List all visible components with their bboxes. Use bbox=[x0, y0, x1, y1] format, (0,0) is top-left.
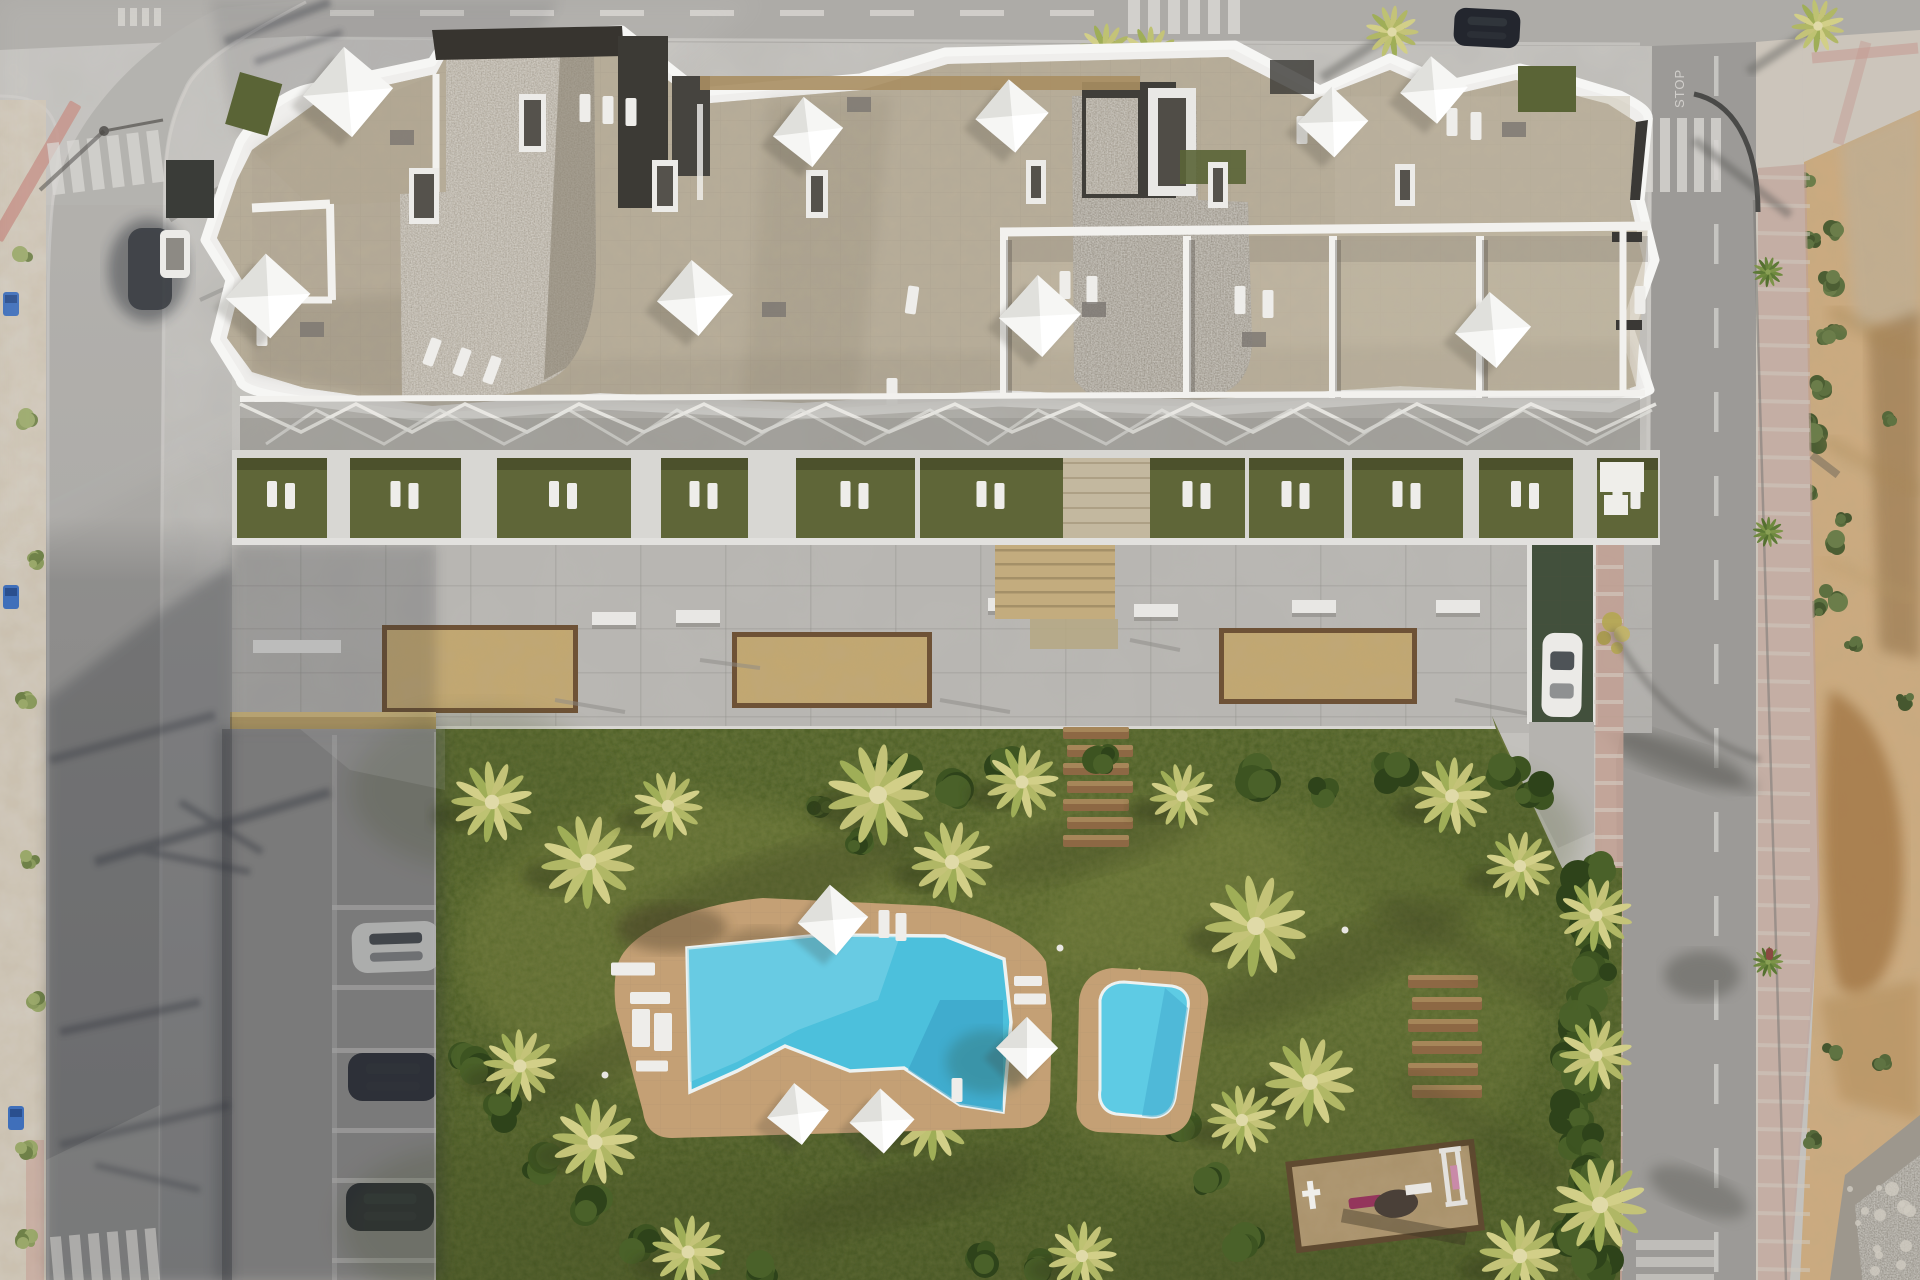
svg-text:STOP: STOP bbox=[1672, 69, 1687, 108]
